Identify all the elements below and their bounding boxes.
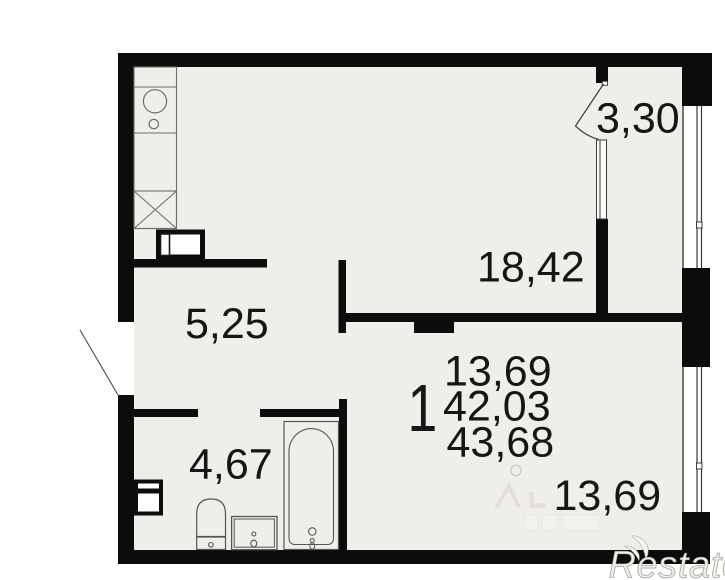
- svg-text:1: 1: [408, 370, 438, 445]
- svg-text:3,30: 3,30: [596, 95, 680, 143]
- svg-text:Restate: Restate: [609, 545, 725, 580]
- svg-text:18,42: 18,42: [477, 244, 585, 292]
- svg-text:4,67: 4,67: [189, 441, 273, 489]
- svg-text:5,25: 5,25: [185, 300, 269, 348]
- svg-text:43,68: 43,68: [447, 419, 555, 467]
- svg-text:13,69: 13,69: [554, 472, 662, 520]
